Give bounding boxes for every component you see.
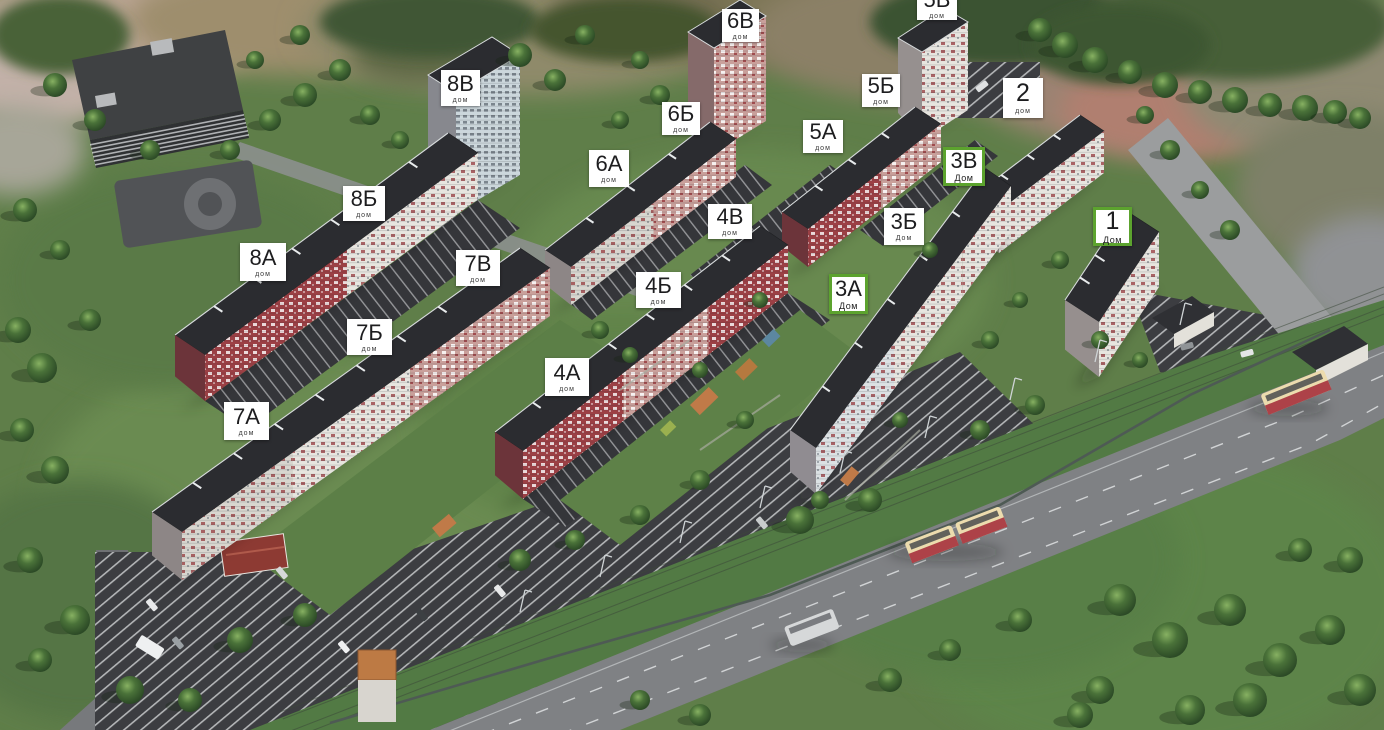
marker-number: 7А (233, 406, 260, 428)
marker-sublabel: дом (239, 430, 255, 437)
building-marker-5v[interactable]: 5Вдом (917, 0, 957, 20)
building-marker-8v[interactable]: 8Вдом (441, 70, 480, 106)
building-marker-1[interactable]: 1Дом (1093, 207, 1132, 246)
marker-number: 6А (596, 153, 623, 175)
marker-number: 7Б (356, 322, 383, 344)
building-marker-3a[interactable]: 3АДом (829, 274, 868, 314)
marker-sublabel: дом (601, 177, 617, 184)
marker-number: 4А (554, 362, 581, 384)
marker-sublabel: дом (1015, 108, 1031, 115)
building-marker-7v[interactable]: 7Вдом (456, 250, 500, 286)
marker-sublabel: дом (559, 386, 575, 393)
building-marker-4a[interactable]: 4Адом (545, 358, 589, 396)
building-marker-8a[interactable]: 8Адом (240, 243, 286, 281)
marker-sublabel: дом (815, 145, 831, 152)
marker-sublabel: дом (929, 13, 945, 20)
marker-sublabel: дом (470, 277, 486, 284)
building-marker-5a[interactable]: 5Адом (803, 120, 843, 153)
marker-number: 3В (951, 150, 978, 172)
marker-number: 5В (924, 0, 951, 11)
marker-number: 5А (810, 121, 837, 143)
marker-sublabel: дом (453, 97, 469, 104)
marker-number: 1 (1106, 209, 1120, 234)
marker-number: 3А (835, 278, 862, 300)
marker-number: 5Б (868, 75, 895, 97)
building-markers-layer: 5Вдом6Вдом8Вдом5Бдом2дом6Бдом5Адом3ВДом6… (0, 0, 1384, 730)
marker-number: 8Б (351, 188, 378, 210)
marker-number: 6В (727, 10, 754, 32)
marker-sublabel: Дом (839, 302, 858, 311)
building-marker-8b[interactable]: 8Бдом (343, 186, 385, 221)
marker-number: 7В (465, 253, 492, 275)
residential-complex-masterplan: 5Вдом6Вдом8Вдом5Бдом2дом6Бдом5Адом3ВДом6… (0, 0, 1384, 730)
building-marker-6v[interactable]: 6Вдом (722, 9, 759, 42)
building-marker-7b[interactable]: 7Бдом (347, 319, 392, 355)
marker-sublabel: Дом (1103, 236, 1122, 245)
building-marker-2[interactable]: 2дом (1003, 78, 1043, 118)
building-marker-4b[interactable]: 4Бдом (636, 272, 681, 308)
building-marker-3b[interactable]: 3БДом (884, 208, 924, 245)
building-marker-7a[interactable]: 7Адом (224, 402, 269, 440)
marker-sublabel: Дом (896, 235, 913, 242)
marker-sublabel: дом (722, 230, 738, 237)
marker-sublabel: Дом (955, 174, 974, 183)
building-marker-6a[interactable]: 6Адом (589, 150, 629, 187)
building-marker-5b[interactable]: 5Бдом (862, 74, 900, 107)
marker-number: 8А (250, 247, 277, 269)
marker-number: 2 (1016, 81, 1030, 106)
building-marker-6b[interactable]: 6Бдом (662, 102, 700, 135)
marker-number: 8В (447, 73, 474, 95)
marker-sublabel: дом (255, 271, 271, 278)
marker-number: 6Б (668, 103, 695, 125)
building-marker-4v[interactable]: 4Вдом (708, 204, 752, 239)
marker-sublabel: дом (356, 212, 372, 219)
marker-number: 4Б (645, 275, 672, 297)
marker-sublabel: дом (651, 299, 667, 306)
marker-sublabel: дом (873, 99, 889, 106)
marker-sublabel: дом (673, 127, 689, 134)
marker-sublabel: дом (362, 346, 378, 353)
building-marker-3v[interactable]: 3ВДом (943, 147, 985, 186)
marker-sublabel: дом (733, 34, 749, 41)
marker-number: 3Б (891, 211, 918, 233)
marker-number: 4В (717, 206, 744, 228)
